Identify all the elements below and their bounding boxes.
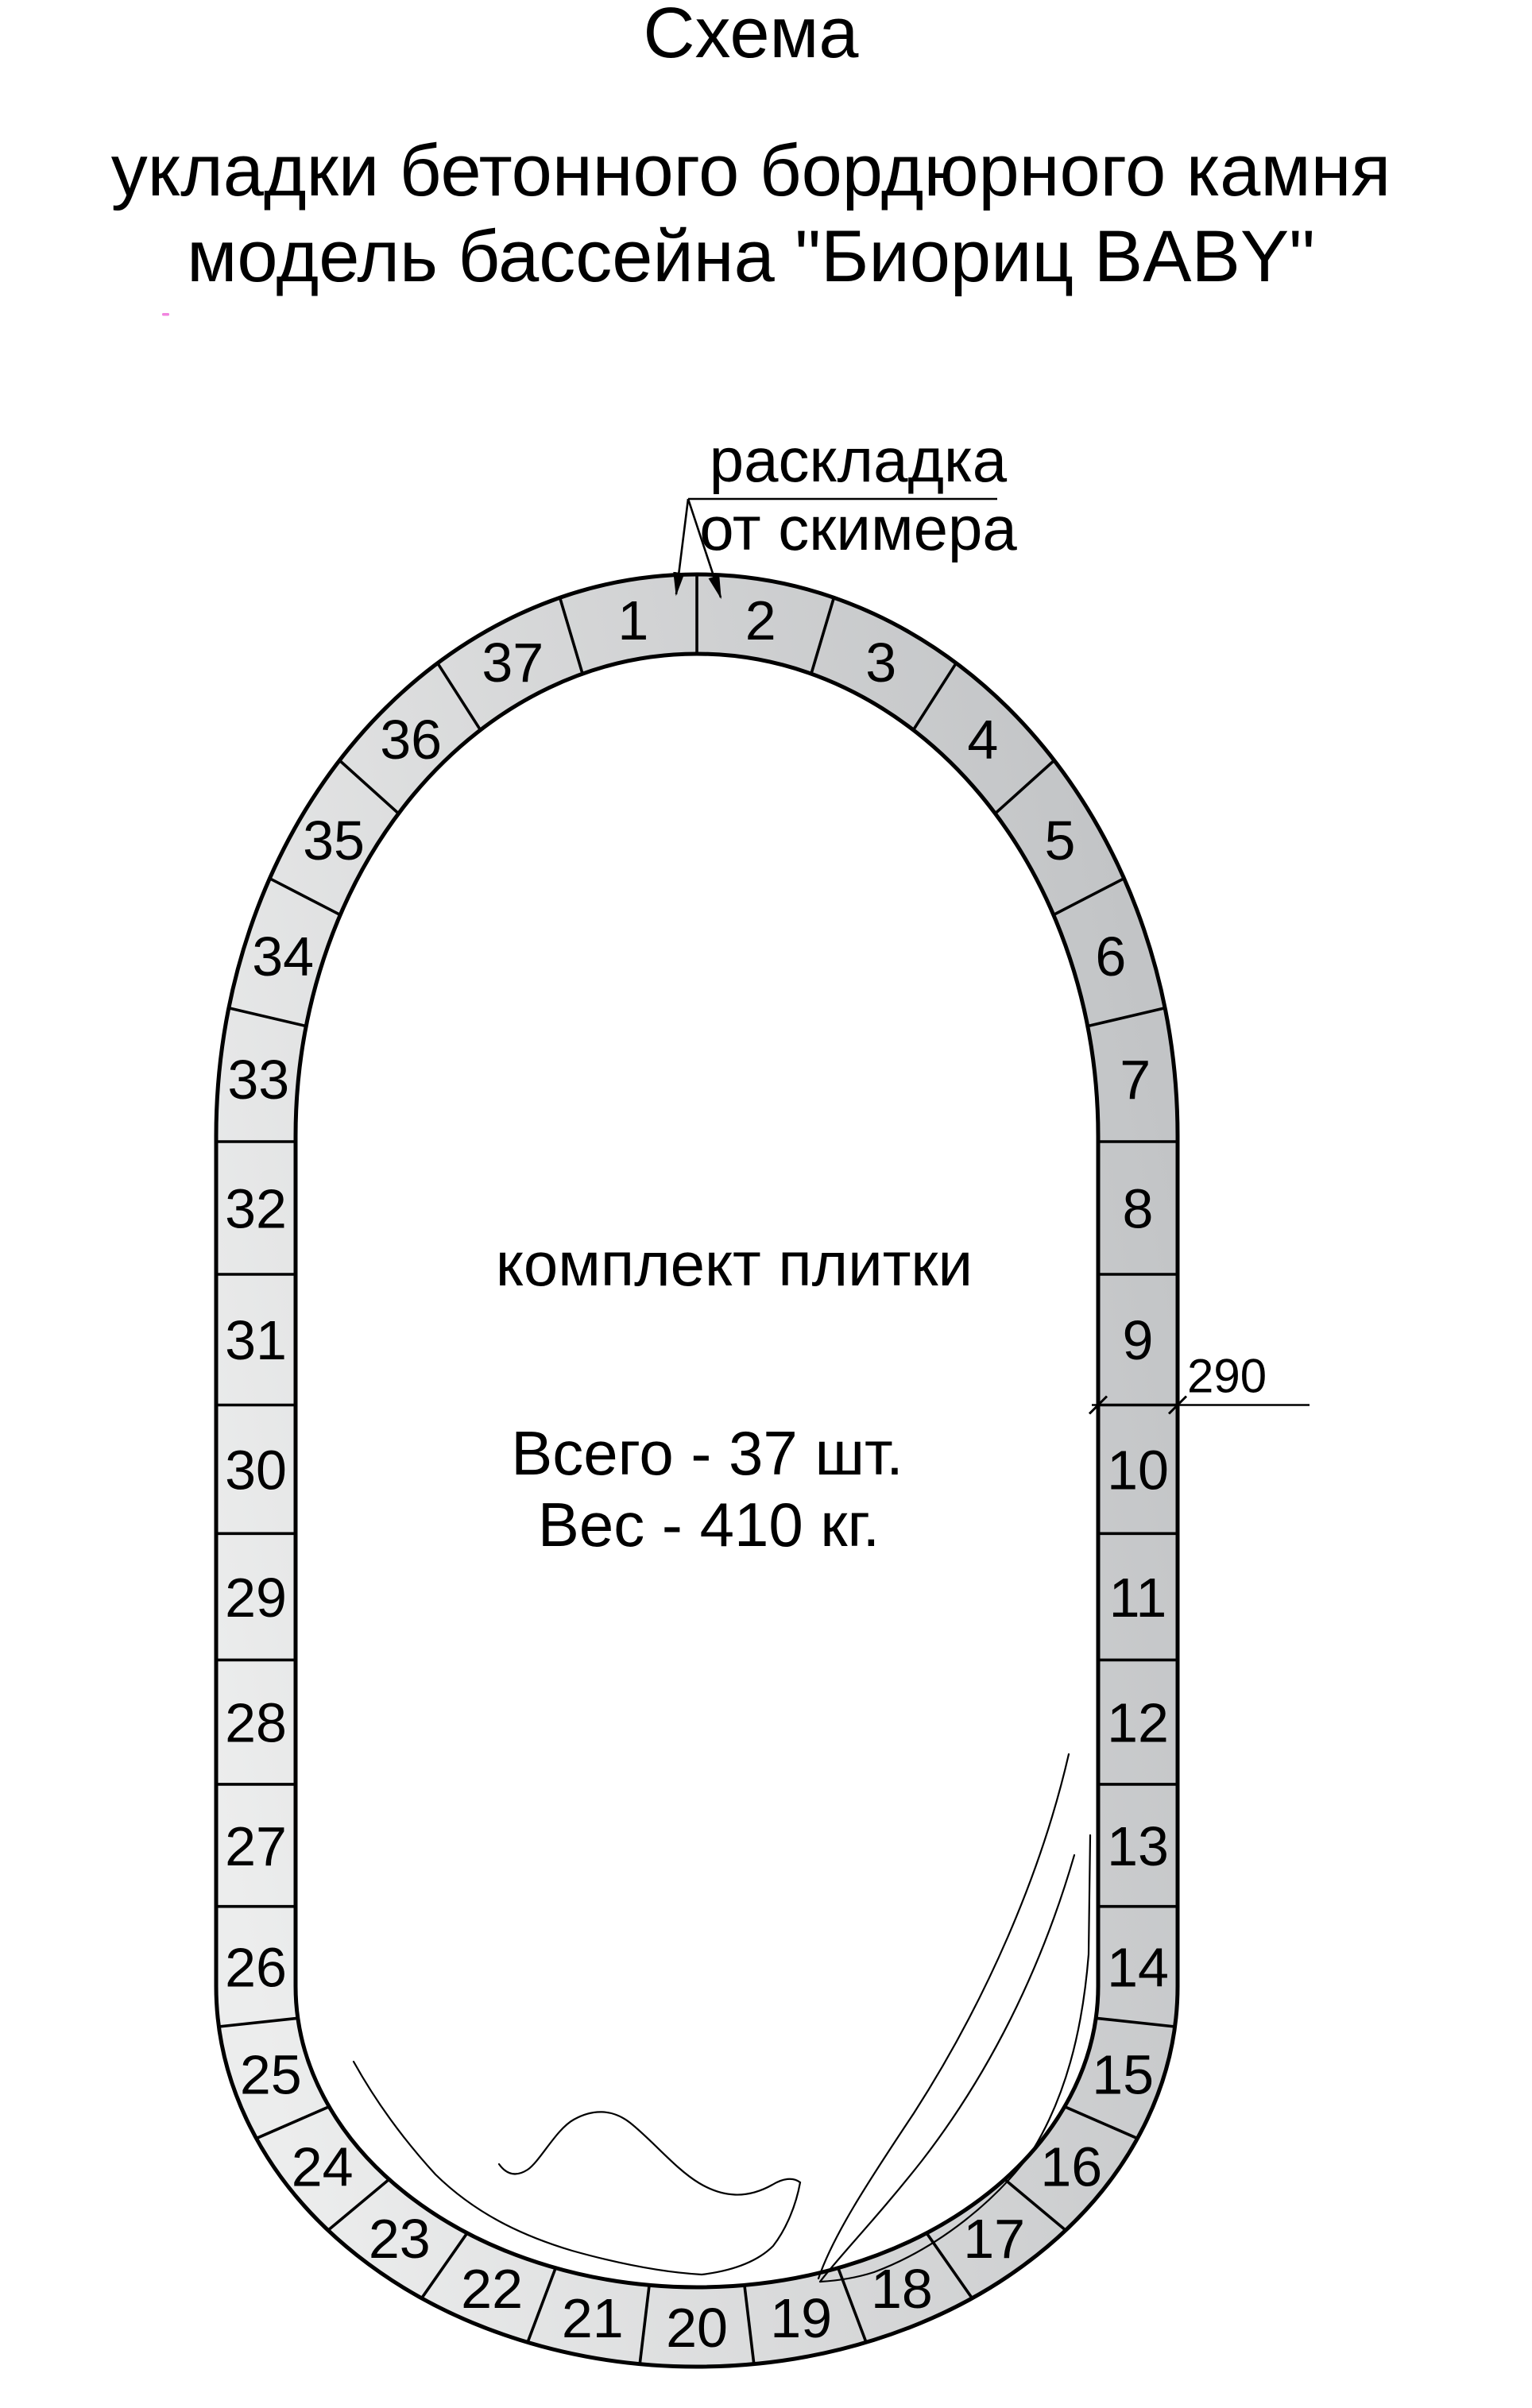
tile-weight-label: Вес - 410 кг. (538, 1490, 880, 1560)
tile-number: 5 (1045, 810, 1076, 872)
title-line-1: Схема (644, 0, 860, 73)
callout-label-line-2: от скимера (699, 493, 1017, 563)
tile-number: 14 (1107, 1936, 1169, 1998)
tile-number: 18 (871, 2258, 933, 2320)
tile-number: 37 (482, 632, 544, 694)
tile-total-label: Всего - 37 шт. (511, 1418, 903, 1488)
tile-number: 16 (1040, 2136, 1102, 2198)
tile-number: 22 (461, 2258, 523, 2320)
tile-number: 34 (252, 926, 314, 988)
tile-number: 28 (225, 1692, 287, 1754)
tile-number: 32 (225, 1178, 287, 1240)
tile-kit-label: комплект плитки (496, 1229, 973, 1299)
tile-number: 15 (1092, 2044, 1154, 2106)
tile-number: 30 (225, 1439, 287, 1501)
tile-number: 11 (1109, 1567, 1167, 1629)
tile-number: 3 (865, 632, 896, 694)
tile-number: 17 (963, 2208, 1025, 2270)
tile-number: 10 (1107, 1439, 1169, 1501)
title-line-3: модель бассейна "Биориц BABY" (187, 216, 1315, 297)
tile-number: 13 (1107, 1815, 1169, 1877)
tile-number: 23 (369, 2208, 431, 2270)
artifact-dot (162, 313, 169, 316)
tile-number: 8 (1123, 1178, 1154, 1240)
tile-number: 35 (303, 810, 365, 872)
diagram-page: 2345678910111213141516171819202122232425… (0, 0, 1532, 2408)
dimension-value: 290 (1187, 1350, 1267, 1403)
tile-number: 9 (1123, 1309, 1154, 1371)
tile-number: 2 (745, 589, 776, 651)
callout-label-line-1: раскладка (710, 425, 1008, 495)
tile-number: 21 (562, 2287, 624, 2349)
tile-number: 26 (225, 1936, 287, 1998)
tile-number: 19 (770, 2287, 832, 2349)
tile-number: 4 (967, 709, 998, 771)
tile-number: 29 (225, 1567, 287, 1629)
tile-number: 27 (225, 1815, 287, 1877)
tile-number: 33 (227, 1049, 289, 1111)
tile-number: 31 (225, 1309, 287, 1371)
tile-number: 20 (666, 2297, 728, 2359)
pool-tiling-diagram: 2345678910111213141516171819202122232425… (0, 0, 1532, 2408)
tile-number: 12 (1107, 1692, 1169, 1754)
tile-number: 6 (1095, 926, 1126, 988)
tile-number: 25 (240, 2044, 302, 2106)
tile-number: 24 (292, 2136, 354, 2198)
tile-number: 36 (380, 709, 442, 771)
tile-number: 1 (617, 589, 648, 651)
title-line-2: укладки бетонного бордюрного камня (111, 130, 1391, 211)
tile-number: 7 (1120, 1049, 1151, 1111)
